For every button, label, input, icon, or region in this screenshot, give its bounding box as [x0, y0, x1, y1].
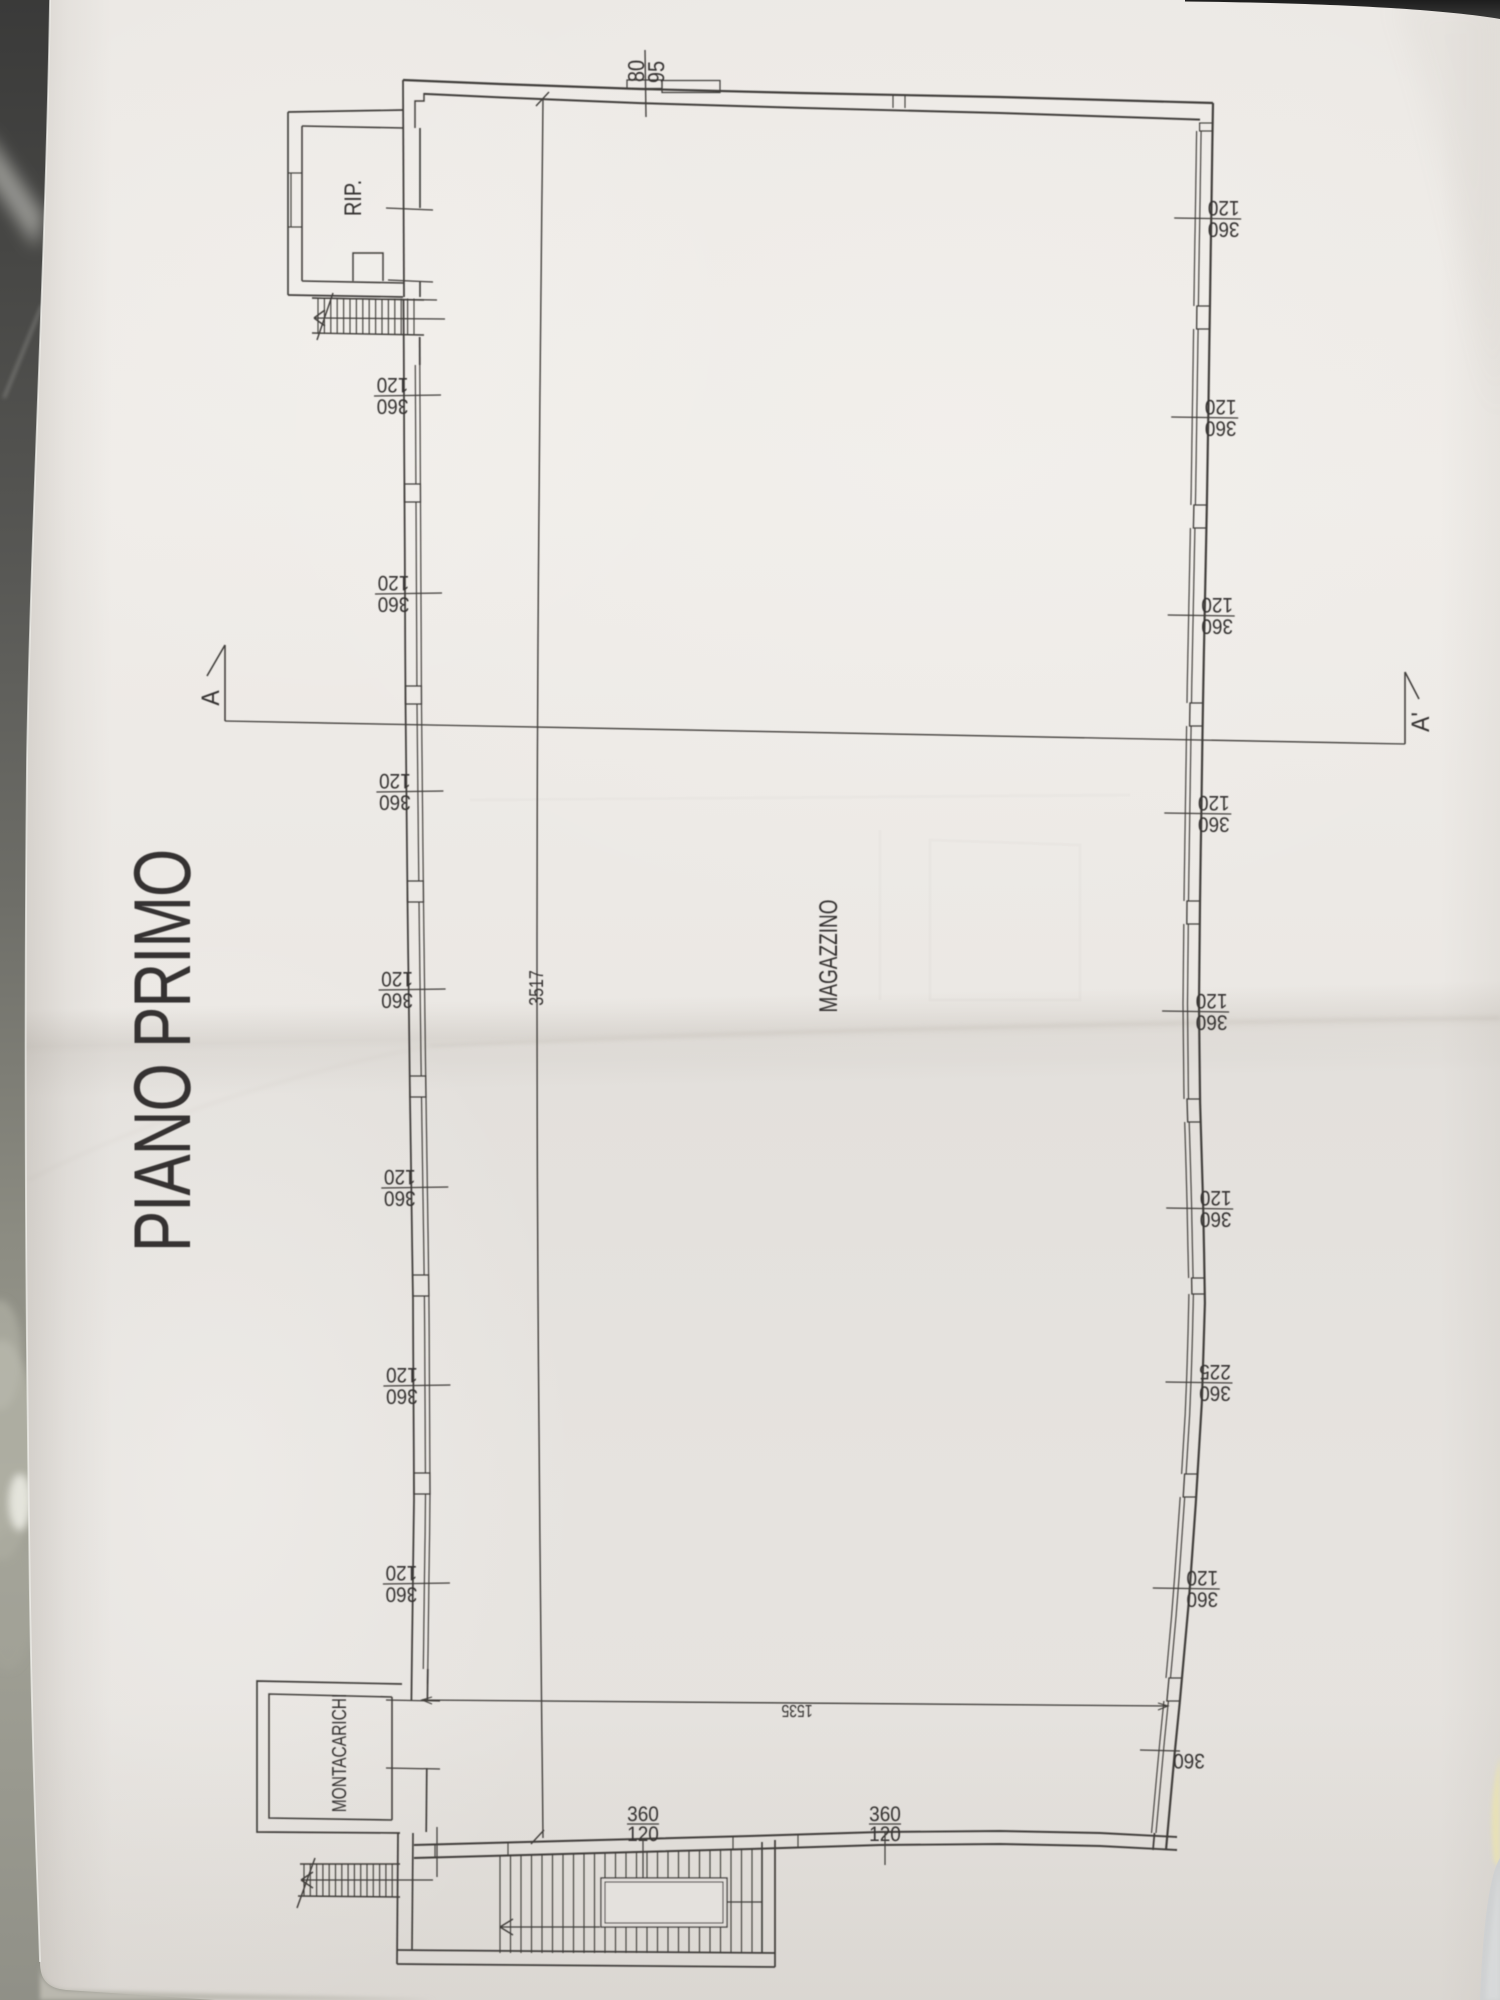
- svg-text:120: 120: [1196, 989, 1228, 1012]
- svg-text:360: 360: [1200, 1207, 1232, 1230]
- svg-text:120: 120: [384, 1165, 416, 1188]
- svg-text:1535: 1535: [781, 1701, 812, 1721]
- svg-text:RIP.: RIP.: [341, 180, 367, 216]
- svg-text:120: 120: [386, 1363, 418, 1386]
- svg-text:A: A: [196, 690, 225, 706]
- svg-text:360: 360: [386, 1582, 418, 1605]
- svg-text:120: 120: [1198, 791, 1230, 814]
- svg-text:MONTACARICHI: MONTACARICHI: [329, 1694, 351, 1813]
- svg-text:120: 120: [378, 571, 410, 594]
- svg-text:120: 120: [386, 1561, 418, 1584]
- svg-text:120: 120: [1200, 1186, 1232, 1209]
- svg-text:360: 360: [378, 592, 410, 615]
- svg-text:360: 360: [384, 1186, 416, 1209]
- svg-text:120: 120: [1205, 395, 1237, 418]
- svg-text:360: 360: [1199, 1381, 1231, 1404]
- svg-text:360: 360: [377, 394, 409, 417]
- svg-text:120: 120: [377, 373, 409, 396]
- svg-text:120: 120: [379, 769, 411, 792]
- svg-text:A': A': [1406, 712, 1435, 732]
- svg-text:360: 360: [1186, 1587, 1218, 1610]
- svg-text:360: 360: [381, 988, 413, 1011]
- svg-text:360: 360: [379, 790, 411, 813]
- svg-text:360: 360: [1205, 416, 1237, 439]
- svg-text:360: 360: [1196, 1010, 1228, 1033]
- svg-text:120: 120: [1186, 1566, 1218, 1589]
- svg-text:360: 360: [1173, 1749, 1205, 1772]
- svg-text:95: 95: [644, 61, 669, 83]
- svg-text:360: 360: [386, 1384, 418, 1407]
- svg-text:360: 360: [1208, 217, 1240, 240]
- svg-text:120: 120: [381, 967, 413, 990]
- svg-text:120: 120: [1208, 196, 1240, 219]
- svg-text:360: 360: [1201, 614, 1233, 637]
- svg-text:225: 225: [1199, 1360, 1231, 1383]
- svg-text:MAGAZZINO: MAGAZZINO: [815, 900, 843, 1013]
- svg-text:PIANO PRIMO: PIANO PRIMO: [119, 850, 209, 1252]
- svg-text:120: 120: [1201, 593, 1233, 616]
- svg-text:360: 360: [1198, 812, 1230, 835]
- svg-text:3517: 3517: [527, 970, 548, 1006]
